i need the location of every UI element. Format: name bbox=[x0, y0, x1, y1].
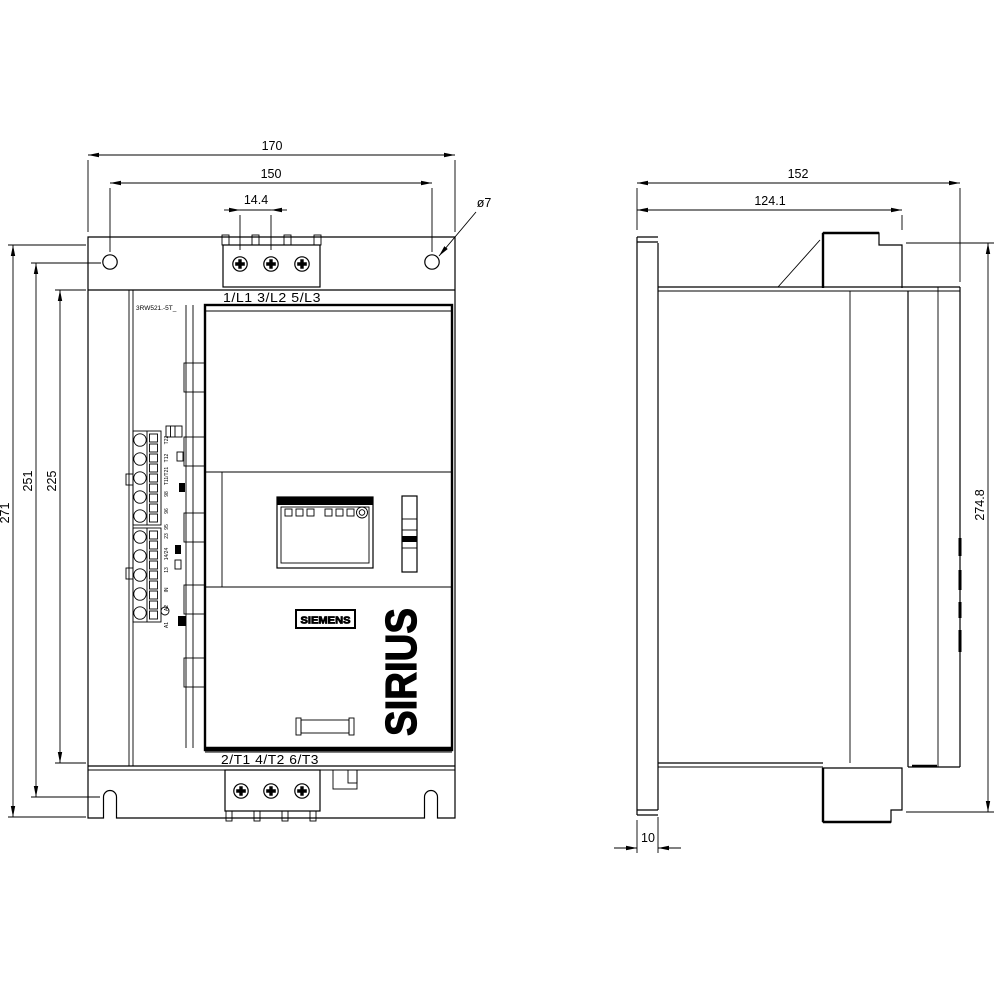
svg-text:T22: T22 bbox=[164, 435, 170, 444]
connector-side-tab bbox=[126, 568, 133, 579]
svg-text:152: 152 bbox=[788, 167, 809, 181]
svg-text:170: 170 bbox=[262, 139, 283, 153]
brand-logo: SIEMENS bbox=[296, 610, 355, 628]
connector-side-tab bbox=[126, 474, 133, 485]
screw-icon bbox=[233, 257, 247, 271]
control-connector-lower bbox=[133, 528, 161, 622]
adjustment-slider bbox=[402, 496, 417, 572]
side-view: 152 124.1 274.8 10 bbox=[614, 167, 994, 853]
svg-text:271: 271 bbox=[0, 503, 12, 524]
svg-text:10: 10 bbox=[641, 831, 655, 845]
svg-text:150: 150 bbox=[261, 167, 282, 181]
dim-plate-thickness: 10 bbox=[614, 817, 681, 853]
product-code: 3RW521.-5T_ bbox=[136, 305, 177, 312]
control-terminal-labels-upper: T22 T12 T11/T21 98 96 95 bbox=[164, 435, 170, 529]
reset-button-icon bbox=[357, 507, 368, 518]
front-view: 1/L1 3/L2 5/L3 3RW521.-5T_ T2 bbox=[0, 139, 491, 821]
load-terminal-labels: 2/T1 4/T2 6/T3 bbox=[221, 752, 319, 767]
dim-depth-front: 124.1 bbox=[637, 194, 902, 230]
top-terminal-block bbox=[222, 235, 321, 287]
svg-text:14/24: 14/24 bbox=[164, 548, 170, 561]
fuse-symbol bbox=[166, 426, 182, 437]
svg-text:124.1: 124.1 bbox=[754, 194, 785, 208]
svg-text:96: 96 bbox=[164, 508, 170, 514]
dim-depth-outer: 152 bbox=[637, 167, 960, 282]
screw-icon bbox=[264, 784, 278, 798]
svg-text:14.4: 14.4 bbox=[244, 193, 268, 207]
side-top-terminal-box bbox=[823, 233, 902, 288]
svg-text:274.8: 274.8 bbox=[973, 489, 987, 520]
bottom-terminal-block bbox=[225, 770, 357, 821]
svg-text:251: 251 bbox=[21, 471, 35, 492]
svg-text:13: 13 bbox=[164, 567, 170, 573]
svg-text:95: 95 bbox=[164, 524, 170, 530]
left-clip-tabs bbox=[184, 363, 205, 687]
svg-text:ø7: ø7 bbox=[477, 196, 492, 210]
display-panel bbox=[277, 497, 373, 568]
svg-text:T11/T21: T11/T21 bbox=[164, 467, 170, 485]
technical-drawing-page: 1/L1 3/L2 5/L3 3RW521.-5T_ T2 bbox=[0, 0, 1000, 1000]
line-terminal-labels: 1/L1 3/L2 5/L3 bbox=[223, 290, 321, 305]
series-text: SIRIUS bbox=[377, 608, 426, 736]
svg-text:225: 225 bbox=[45, 471, 59, 492]
dim-screw-pitch: 14.4 bbox=[224, 193, 287, 250]
din-rail-latch bbox=[333, 770, 357, 789]
svg-text:98: 98 bbox=[164, 491, 170, 497]
side-bottom-terminal-box bbox=[823, 768, 902, 822]
brand-text: SIEMENS bbox=[301, 615, 351, 627]
dim-width-outer: 170 bbox=[88, 139, 455, 232]
svg-text:A1: A1 bbox=[164, 622, 170, 628]
control-terminal-labels-lower: 23 14/24 13 IN A2 A1 bbox=[164, 533, 170, 628]
mounting-hole-right bbox=[425, 255, 439, 269]
control-connector-upper bbox=[133, 431, 161, 525]
mounting-hole-left bbox=[103, 255, 117, 269]
dim-height-holes: 251 bbox=[21, 263, 101, 797]
dimension-drawing-svg: 1/L1 3/L2 5/L3 3RW521.-5T_ T2 bbox=[0, 0, 1000, 1000]
dim-height-total: 274.8 bbox=[906, 243, 994, 812]
dim-hole-diameter: ø7 bbox=[439, 196, 491, 256]
svg-text:T12: T12 bbox=[164, 453, 170, 462]
screw-icon bbox=[264, 257, 278, 271]
side-mounting-plate bbox=[637, 237, 658, 815]
dim-height-outer: 271 bbox=[0, 245, 86, 817]
screw-icon bbox=[234, 784, 248, 798]
screw-icon bbox=[295, 784, 309, 798]
dim-height-body: 225 bbox=[45, 290, 86, 763]
chamfer-line bbox=[778, 240, 820, 287]
svg-text:IN: IN bbox=[164, 587, 170, 592]
svg-text:23: 23 bbox=[164, 533, 170, 539]
screw-icon bbox=[295, 257, 309, 271]
label-plate bbox=[296, 718, 354, 735]
